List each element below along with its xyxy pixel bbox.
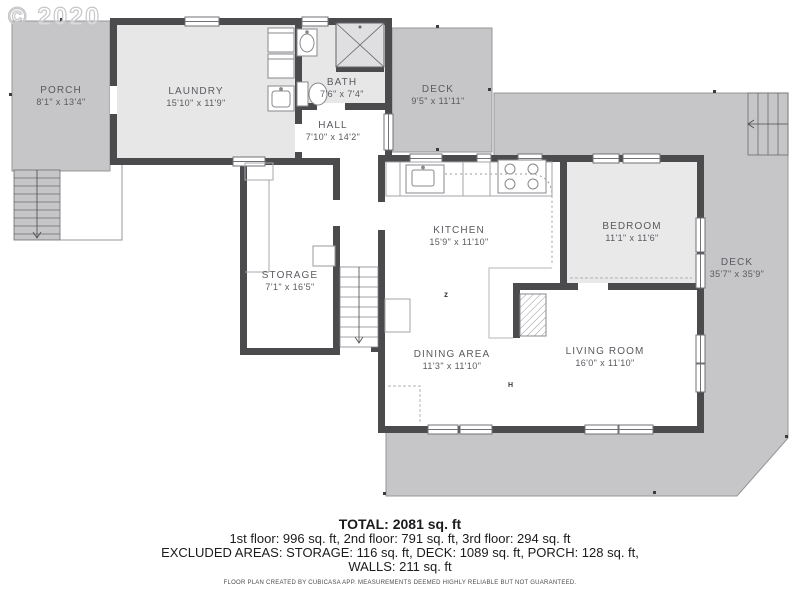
room-label-deck-right: DECK 35'7" x 35'9" (710, 257, 765, 279)
room-label-living: LIVING ROOM 16'0" x 11'10" (566, 346, 645, 368)
wall (513, 283, 704, 290)
copyright-watermark: © 2020 (8, 3, 101, 32)
wall (371, 345, 385, 352)
porch-landing-outline (60, 165, 122, 240)
wall (295, 103, 392, 110)
wall (110, 158, 340, 165)
room-label-bath: BATH 7'6" x 7'4" (320, 77, 364, 99)
wall (110, 18, 117, 165)
room-label-dining: DINING AREA 11'3" x 11'10" (414, 349, 491, 371)
wall (378, 426, 704, 433)
wall (336, 65, 384, 72)
floors-area: 1st floor: 996 sq. ft, 2nd floor: 791 sq… (0, 532, 800, 546)
total-area: TOTAL: 2081 sq. ft (0, 517, 800, 532)
deck-stairs-icon (748, 93, 788, 155)
wall (295, 18, 302, 158)
wall (385, 18, 392, 162)
room-label-porch: PORCH 8'1" x 13'4" (36, 85, 85, 107)
wall (378, 155, 704, 162)
wall (560, 155, 567, 290)
disclaimer-text: FLOOR PLAN CREATED BY CUBICASA APP. MEAS… (0, 580, 800, 586)
walls-area: WALLS: 211 sq. ft (0, 560, 800, 574)
room-label-laundry: LAUNDRY 15'10" x 11'9" (166, 86, 225, 108)
wall (240, 158, 247, 355)
wall (110, 18, 392, 25)
wall (513, 283, 520, 338)
excluded-areas: EXCLUDED AREAS: STORAGE: 116 sq. ft, DEC… (0, 546, 800, 560)
wall (378, 155, 385, 433)
area-summary: TOTAL: 2081 sq. ft 1st floor: 996 sq. ft… (0, 517, 800, 586)
wall (333, 158, 340, 355)
room-label-deck-top: DECK 9'5" x 11'11" (411, 84, 464, 106)
room-label-bedroom: BEDROOM 11'1" x 11'6" (602, 221, 661, 243)
room-label-storage: STORAGE 7'1" x 16'5" (262, 270, 318, 292)
room-label-hall: HALL 7'10" x 14'2" (306, 120, 361, 142)
corridor-floor (336, 158, 382, 350)
room-label-kitchen: KITCHEN 15'9" x 11'10" (429, 225, 488, 247)
storage-floor (243, 160, 337, 350)
wall (240, 348, 340, 355)
porch-stairs-icon (14, 170, 60, 240)
floor-plan: z H PORCH 8'1" x 13'4" LAUNDRY 15'10" x … (0, 0, 800, 600)
wall (697, 155, 704, 433)
